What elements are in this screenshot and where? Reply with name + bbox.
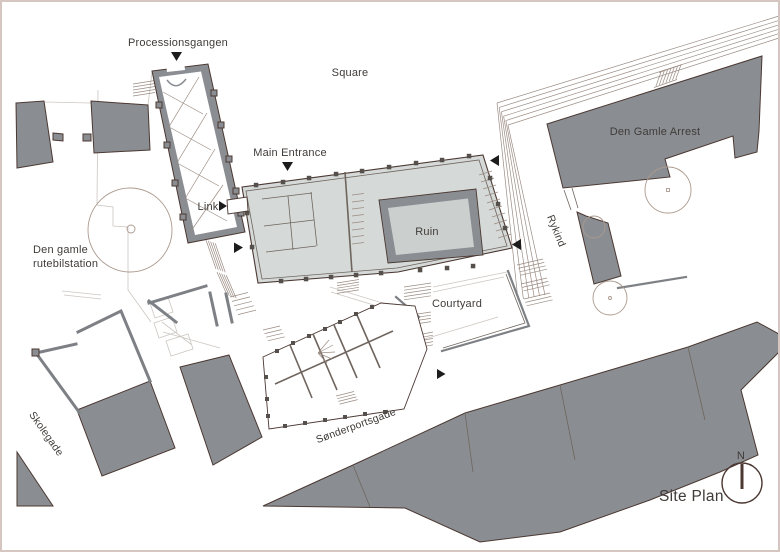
arrow-courtyard-entry <box>437 369 446 379</box>
arrow-west-entry <box>234 243 243 254</box>
site-plan-page: Processionsgangen Square Main Entrance L… <box>0 0 780 552</box>
chapel-west-steps <box>133 81 155 97</box>
building-arrest <box>547 56 762 188</box>
building-skolegade-1 <box>77 381 175 476</box>
arrow-northeast-entry <box>490 155 499 166</box>
museum-south-steps <box>337 280 359 294</box>
label-ruin: Ruin <box>415 226 438 238</box>
arrest-wing-door <box>564 188 578 210</box>
arrow-processionsgangen <box>171 52 182 61</box>
building-quedens-gaard <box>263 303 427 429</box>
chapel-courtyard-ramp <box>206 240 236 298</box>
label-skolegade: Skolegade <box>26 409 65 458</box>
label-arrest: Den Gamle Arrest <box>610 126 701 138</box>
arrow-east-entry <box>512 239 521 250</box>
label-courtyard: Courtyard <box>432 298 482 310</box>
wall-end-cap <box>32 349 39 356</box>
label-link: Link <box>198 201 219 213</box>
building-northwest-1 <box>16 101 63 168</box>
arrow-main-entrance <box>282 162 293 171</box>
label-site-plan: Site Plan <box>659 488 724 505</box>
site-plan-drawing: Processionsgangen Square Main Entrance L… <box>0 0 780 552</box>
label-north: N <box>737 450 745 462</box>
building-skolegade-2 <box>180 355 262 465</box>
label-square: Square <box>332 67 369 79</box>
rykind-stair-treads <box>517 259 553 306</box>
arrest-garden-wall <box>618 277 686 288</box>
label-main-entrance: Main Entrance <box>253 147 327 159</box>
building-southwest-triangle <box>17 452 53 506</box>
label-rykind: Rykind <box>544 213 568 248</box>
label-processionsgangen: Processionsgangen <box>128 37 228 49</box>
label-rutebilstation-1: Den gamle <box>33 244 88 256</box>
building-northwest-2 <box>83 101 150 153</box>
label-rutebilstation-2: rutebilstation <box>33 258 98 270</box>
link-corridor <box>227 197 248 214</box>
